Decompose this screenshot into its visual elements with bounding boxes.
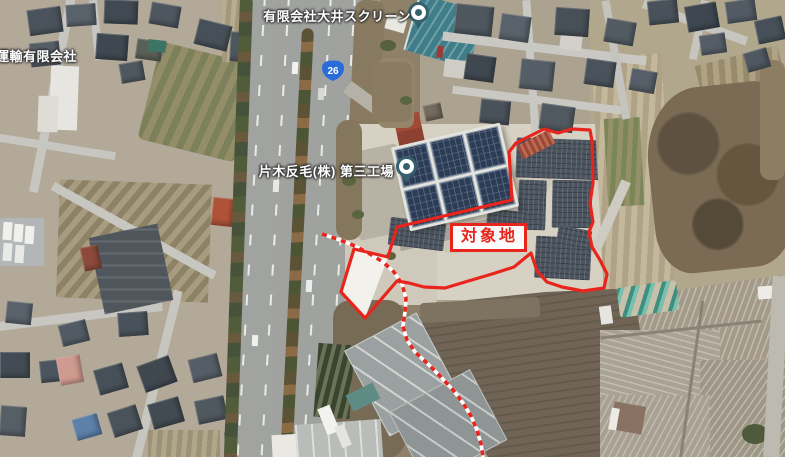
vehicle xyxy=(318,88,325,100)
truck xyxy=(2,222,12,241)
house-roof xyxy=(519,58,556,91)
house-roof xyxy=(65,3,96,27)
house-roof xyxy=(117,311,149,337)
house-roof xyxy=(95,33,129,61)
house-roof xyxy=(5,301,33,326)
solar-panel xyxy=(430,134,471,179)
pin-oi-screen[interactable] xyxy=(408,2,429,23)
house-roof xyxy=(0,405,27,437)
bush xyxy=(352,210,364,219)
scrub-patch xyxy=(372,62,412,122)
solar-panel xyxy=(465,126,506,171)
scrub-patch xyxy=(760,60,785,180)
label-kataki-hanmo-factory[interactable]: 片木反毛(株) 第三工場 xyxy=(259,161,394,180)
bale-pile xyxy=(552,180,593,229)
house-roof xyxy=(479,98,511,125)
house-roof xyxy=(26,6,63,36)
bush xyxy=(400,96,412,105)
building-white xyxy=(599,305,613,324)
vehicle xyxy=(273,180,280,192)
vehicle xyxy=(292,62,299,74)
trees xyxy=(380,40,396,51)
label-oi-screen[interactable]: 有限会社大井スクリーン xyxy=(263,6,411,25)
truck xyxy=(13,224,23,243)
house-roof xyxy=(603,18,637,47)
pink-roof-house xyxy=(56,354,84,386)
label-unyu-company[interactable]: 運輸有限会社 xyxy=(0,46,77,65)
house-roof xyxy=(463,53,496,83)
solar-panel xyxy=(439,175,480,220)
truck xyxy=(2,243,12,262)
solar-panel xyxy=(404,183,445,228)
warehouse-white xyxy=(37,96,58,133)
solar-panel xyxy=(474,167,515,212)
satellite-terrain xyxy=(0,0,785,457)
house-roof xyxy=(699,32,728,55)
house-roof xyxy=(583,58,616,88)
vehicle xyxy=(252,335,259,346)
truck xyxy=(24,226,34,245)
pin-dot-icon xyxy=(415,9,422,16)
vehicle xyxy=(306,280,313,292)
house-roof xyxy=(454,3,495,37)
bush xyxy=(386,252,396,260)
row-field xyxy=(148,430,220,457)
house-roof xyxy=(0,352,30,378)
house-roof xyxy=(538,103,575,133)
target-site-label: 対象地 xyxy=(450,223,527,252)
route-number: 26 xyxy=(327,66,339,77)
house-roof xyxy=(628,68,657,94)
house-roof xyxy=(423,102,444,121)
house-roof xyxy=(725,0,758,24)
house-roof xyxy=(498,13,531,43)
house-roof xyxy=(554,7,590,37)
satellite-map[interactable]: 26 有限会社大井スクリーン 運輸有限会社 片木反毛(株) 第三工場 対象地 xyxy=(0,0,785,457)
route-26-shield-icon: 26 xyxy=(321,60,345,82)
pin-kataki-hanmo-factory[interactable] xyxy=(396,156,417,177)
green-tarp xyxy=(147,39,166,53)
house-roof xyxy=(118,60,145,84)
truck xyxy=(14,245,24,264)
pin-dot-icon xyxy=(403,163,410,170)
house-roof xyxy=(647,0,679,26)
house-roof xyxy=(104,0,139,25)
house-roof xyxy=(684,1,720,32)
